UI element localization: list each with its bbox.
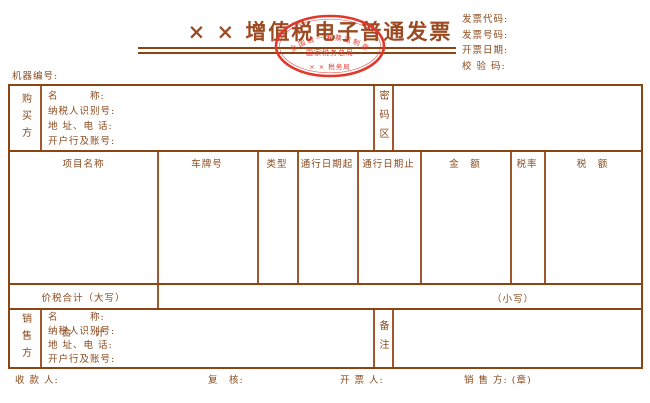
totals-section: 价税合计（大写） （小写） bbox=[10, 285, 641, 310]
seller-party-label: 销售方 bbox=[10, 310, 40, 367]
col-header-tax-amount: 税 额 bbox=[544, 156, 641, 170]
seller-section: 销售方 名 称: 纳税人识别号: 地 址、电 话: 开户行及账号: 备注 bbox=[10, 310, 641, 367]
divider bbox=[420, 152, 422, 283]
col-header-date-from: 通行日期起 bbox=[297, 156, 357, 170]
divider bbox=[157, 285, 159, 308]
stamp-bottom-text: × × 税务局 bbox=[309, 62, 351, 71]
divider bbox=[40, 86, 42, 150]
col-header-amount: 金 额 bbox=[420, 156, 510, 170]
total-in-words-label: 价税合计（大写） bbox=[10, 285, 157, 308]
password-area-label: 密码区 bbox=[373, 86, 392, 150]
divider bbox=[297, 152, 299, 283]
invoice-form-table: 购买方 名 称: 纳税人识别号: 地 址、电 话: 开户行及账号: 密码区 项目… bbox=[8, 84, 643, 369]
col-header-date-to: 通行日期止 bbox=[357, 156, 420, 170]
seller-seal-label: 销 售 方: (章) bbox=[464, 372, 532, 386]
stamp-middle-text: 国家税务总局 bbox=[306, 48, 354, 57]
col-header-type: 类型 bbox=[257, 156, 297, 170]
invoice-page: × × 增值税电子普通发票 全国统一发票监制章 国家税务总局 × × 税务局 发… bbox=[0, 0, 650, 403]
invoice-meta: 发票代码: 发票号码: 开票日期: 校 验 码: bbox=[462, 12, 508, 74]
divider bbox=[544, 152, 546, 283]
buyer-party-label: 购买方 bbox=[10, 86, 40, 150]
divider bbox=[357, 152, 359, 283]
payee-label: 收 款 人: bbox=[15, 372, 59, 386]
buyer-section: 购买方 名 称: 纳税人识别号: 地 址、电 话: 开户行及账号: 密码区 bbox=[10, 86, 641, 152]
divider bbox=[510, 152, 512, 283]
invoice-number-label: 发票号码: bbox=[462, 28, 508, 44]
password-area bbox=[394, 86, 641, 150]
machine-number-label: 机器编号: bbox=[12, 68, 58, 82]
total-in-figures-label: （小写） bbox=[492, 291, 534, 305]
tax-bureau-stamp-icon: 全国统一发票监制章 国家税务总局 × × 税务局 bbox=[272, 13, 388, 79]
issue-date-label: 开票日期: bbox=[462, 43, 508, 59]
invoice-code-label: 发票代码: bbox=[462, 12, 508, 28]
line-items-section: 项目名称 车牌号 类型 通行日期起 通行日期止 金 额 税率 税 额 合 计 bbox=[10, 152, 641, 285]
remark-area bbox=[394, 310, 641, 367]
col-header-item-name: 项目名称 bbox=[10, 156, 157, 170]
divider bbox=[257, 152, 259, 283]
drawer-label: 开 票 人: bbox=[340, 372, 384, 386]
reviewer-label: 复 核: bbox=[208, 372, 244, 386]
divider bbox=[40, 310, 42, 367]
col-header-plate-no: 车牌号 bbox=[157, 156, 257, 170]
col-header-tax-rate: 税率 bbox=[510, 156, 544, 170]
divider bbox=[157, 152, 159, 283]
remark-label: 备注 bbox=[373, 310, 392, 367]
check-code-label: 校 验 码: bbox=[462, 59, 508, 75]
